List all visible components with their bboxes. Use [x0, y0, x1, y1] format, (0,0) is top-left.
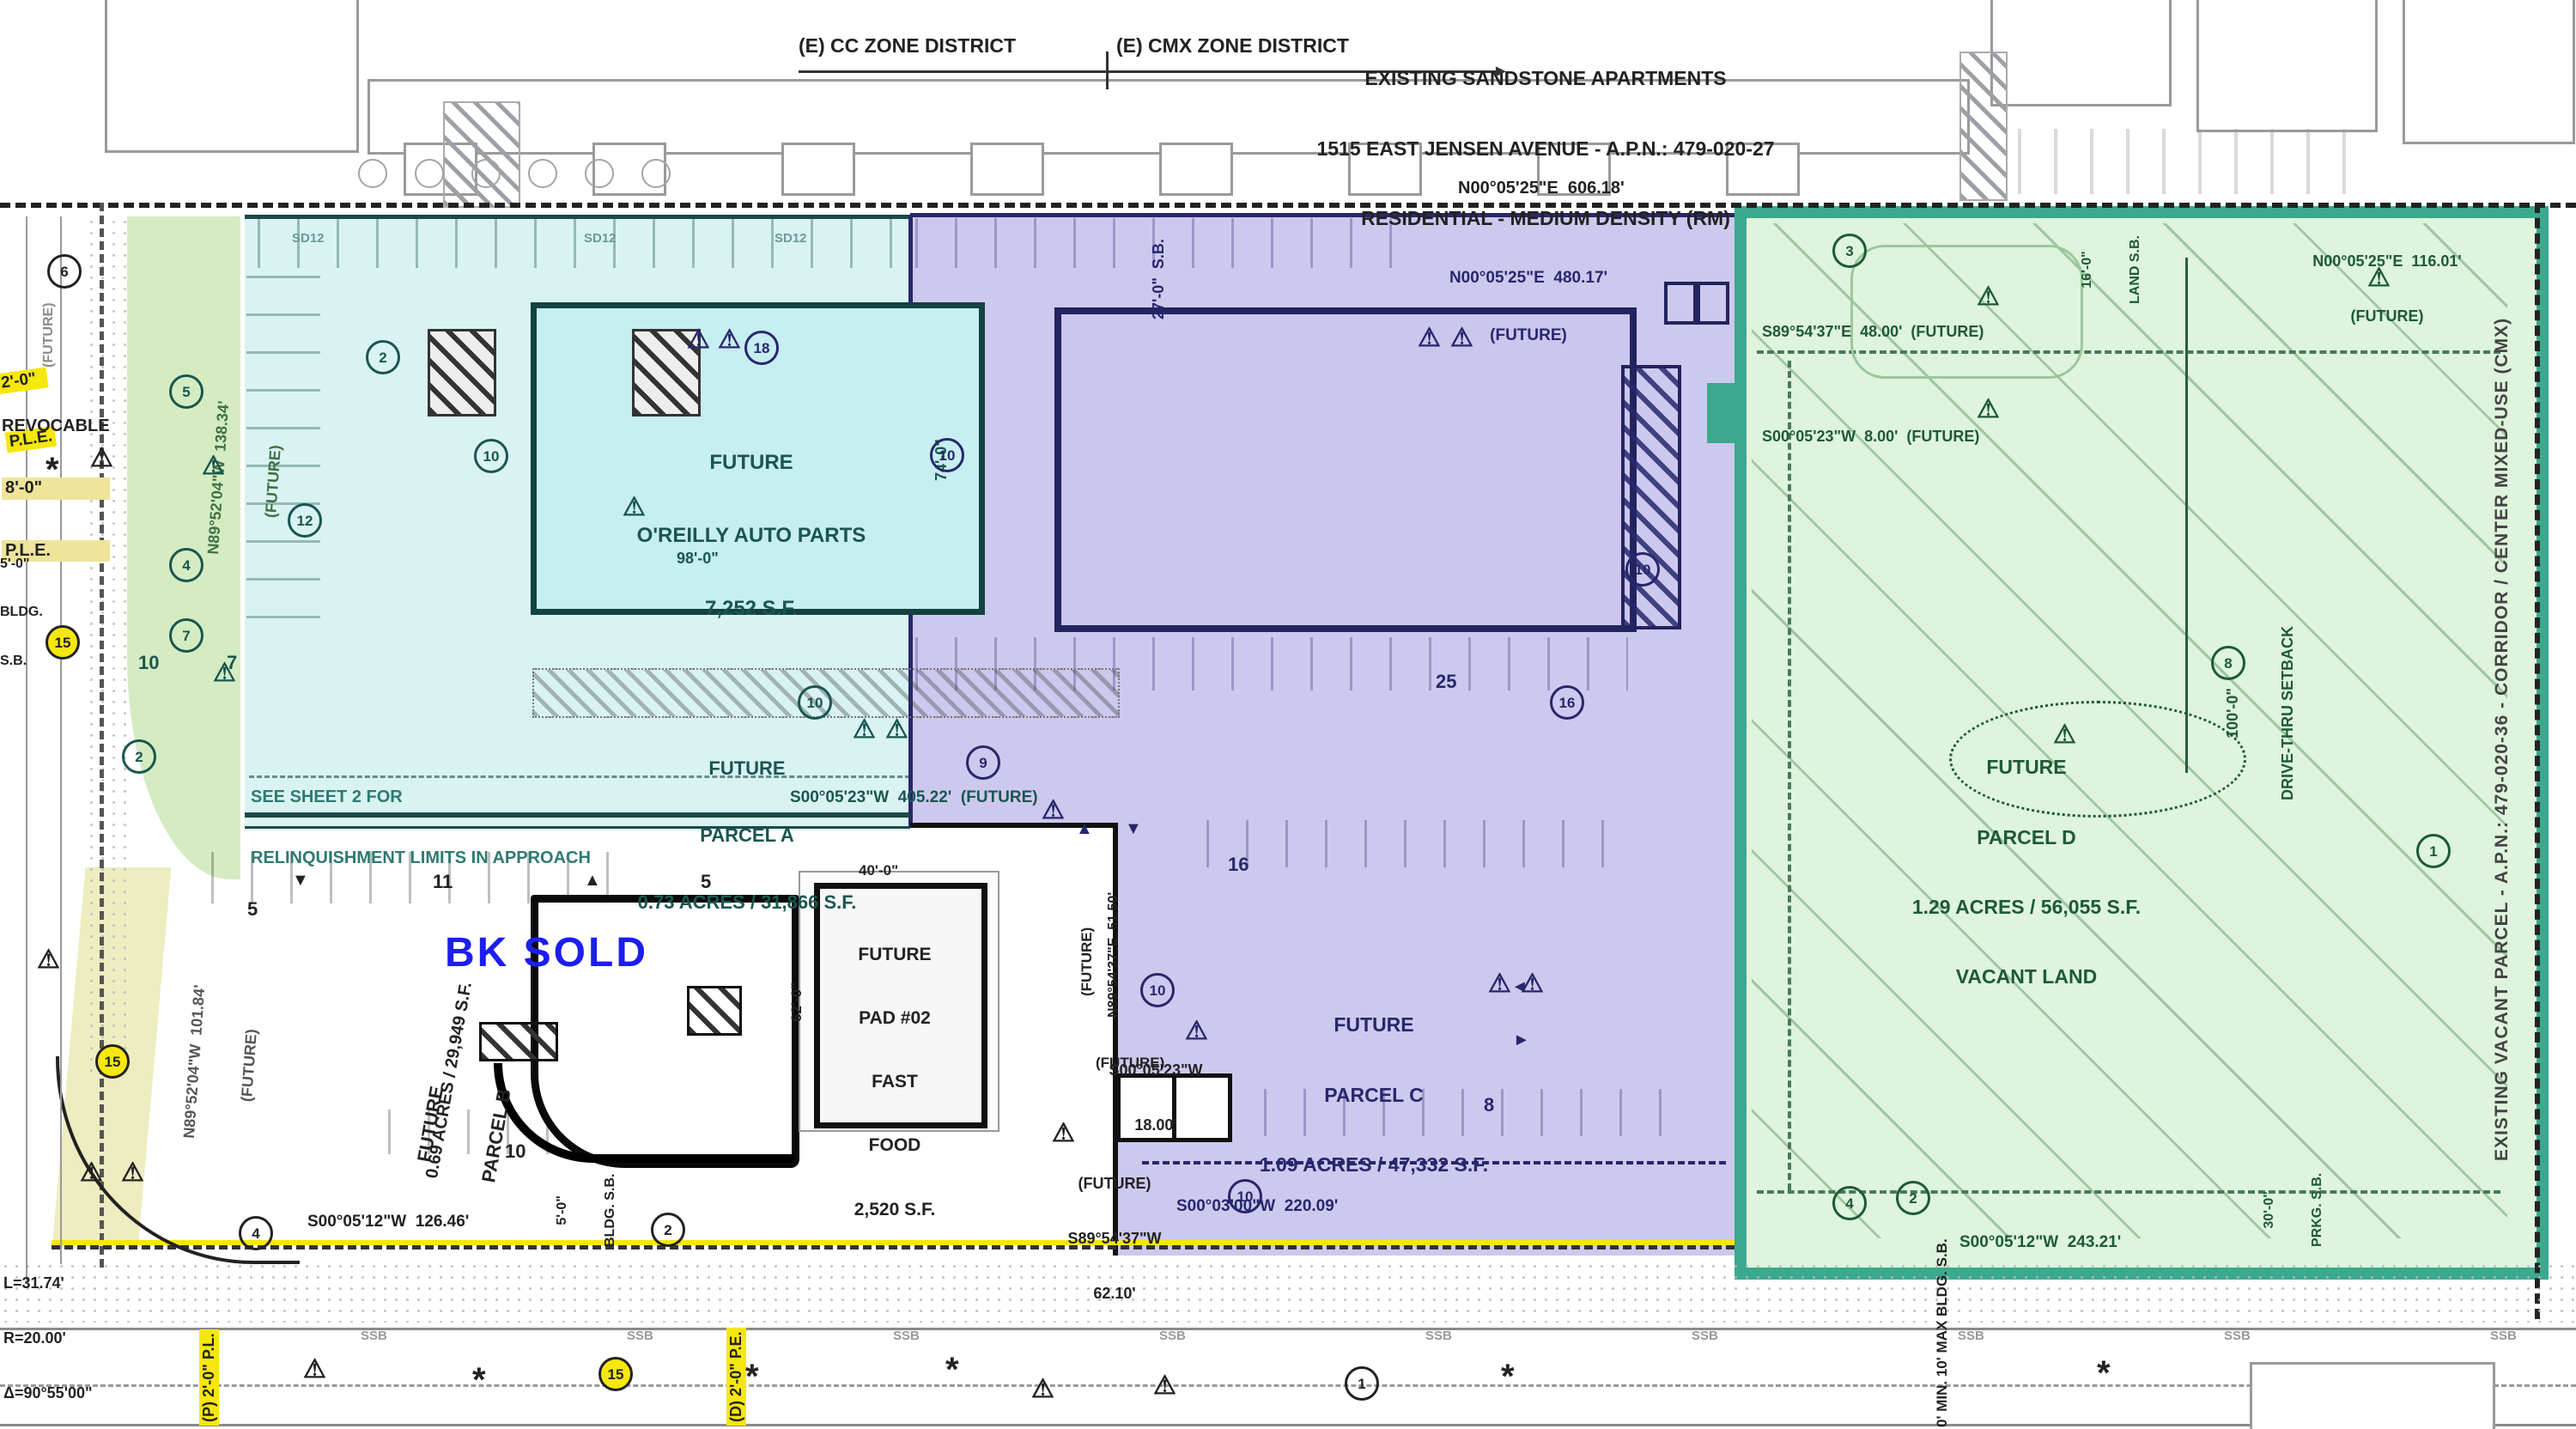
bearing-d-w8: S00°05'23"W 8.00' (FUTURE): [1762, 428, 1979, 446]
land-setback-dim: 16'-0": [2080, 235, 2096, 304]
bk-hatch-1: [479, 1022, 558, 1061]
bearing-w101-2: (FUTURE): [235, 988, 264, 1142]
warning-triangle-icon: ⚠: [885, 717, 908, 743]
prkg-setback-dim: 30'-0": [2262, 1173, 2278, 1247]
warning-triangle-icon: ⚠: [1977, 397, 2000, 423]
line-tag: SSB: [627, 1329, 653, 1342]
bearing-w62-3: 62.10': [1054, 1285, 1175, 1303]
parcel-c-line3: 1.09 ACRES / 47,332 S.F.: [1202, 1153, 1546, 1177]
parking-count: 10: [505, 1142, 526, 1161]
apartments-line3: RESIDENTIAL - MEDIUM DENSITY (RM): [1236, 207, 1855, 230]
future-left-top: (FUTURE): [41, 302, 58, 368]
keynote-circle-12[interactable]: 12: [288, 503, 322, 538]
keynote-circle-10[interactable]: 10: [1140, 973, 1175, 1007]
shops-hatch-column: [1621, 365, 1681, 629]
warning-triangle-icon: ⚠: [1418, 325, 1441, 351]
pl-bottom-tag: (P) 2'-0" P.L.: [199, 1329, 219, 1426]
keynote-circle-18[interactable]: 18: [744, 331, 779, 365]
left-road-line-2: [60, 216, 62, 1264]
tree-icon: [471, 159, 501, 188]
warning-triangle-icon: ⚠: [2367, 265, 2391, 291]
bearing-b-south: S00°05'12"W 126.46': [307, 1213, 469, 1231]
keynote-circle-4[interactable]: 4: [169, 548, 204, 582]
existing-building-topright-3: [2403, 0, 2575, 144]
right-parcel-note: EXISTING VACANT PARCEL - A.P.N.: 479-020…: [2492, 318, 2513, 1161]
oreilly-label: FUTURE O'REILLY AUTO PARTS 7,252 S.F.: [550, 402, 953, 669]
line-tag: SSB: [361, 1329, 387, 1342]
sheet2-line1: SEE SHEET 2 FOR: [251, 787, 591, 808]
warning-triangle-icon: ⚠: [853, 717, 876, 743]
parcel-d-setback-bottom: [1757, 1190, 2500, 1194]
parking-count: 10: [138, 654, 159, 672]
trash-enclosure-1: [1664, 282, 1697, 325]
sidewalk-band-bottom: [0, 1261, 2576, 1323]
bearing-w62-1: (FUTURE): [1054, 1175, 1175, 1193]
parcel-d-line4: VACANT LAND: [1855, 965, 2198, 988]
bearing-a-south: S00°05'23"W 405.22' (FUTURE): [790, 788, 1038, 807]
bearing-d-ne-2: (FUTURE): [2267, 307, 2507, 325]
bearing-s18-2: 18.00': [1104, 1116, 1207, 1134]
warning-triangle-icon: ⚠: [1042, 798, 1065, 824]
curve-l: L=31.74': [3, 1274, 93, 1292]
line-tag: SSB: [893, 1329, 920, 1342]
hydrant-icon: *: [945, 1353, 959, 1387]
parking-count: 8: [1484, 1096, 1494, 1115]
keynote-circle-15[interactable]: 15: [95, 1044, 130, 1079]
keynote-circle-10[interactable]: 10: [798, 685, 832, 720]
crosswalk-hatch-right: [1959, 52, 2008, 201]
setback-bldg5: 5'-0" BLDG. S.B.: [522, 1174, 652, 1247]
line-tag: SSB: [1958, 1329, 1984, 1342]
building-bottom-right: [2250, 1362, 2495, 1429]
oreilly-line2: O'REILLY AUTO PARTS: [550, 524, 953, 548]
apartments-line1: EXISTING SANDSTONE APARTMENTS: [1236, 67, 1855, 90]
curve-data: L=31.74' R=20.00' Δ=90°55'00": [3, 1238, 93, 1429]
pad02-line2: PAD #02: [816, 1008, 974, 1030]
hydrant-icon: *: [745, 1359, 759, 1394]
parcel-b-line2: PARCEL B: [477, 1087, 516, 1184]
keynote-circle-3[interactable]: 3: [1832, 234, 1867, 268]
line-tag: SSB: [1692, 1329, 1718, 1342]
pad02-line1: FUTURE: [816, 945, 974, 966]
bearing-w101: N89°52'04"W 101.84' (FUTURE): [144, 982, 301, 1146]
warning-triangle-icon: ⚠: [1488, 971, 1511, 997]
pad02-dim-40: 40'-0": [859, 862, 898, 879]
drive-thru-text: DRIVE-THRU SETBACK: [2279, 626, 2297, 800]
pe-bottom-tag: (D) 2'-0" P.E.: [726, 1328, 746, 1426]
flow-arrow-icon: ▲: [1076, 820, 1093, 837]
pad02-dim-62: 62'-0": [788, 982, 805, 1022]
warning-triangle-icon: ⚠: [1031, 1377, 1054, 1402]
warning-triangle-icon: ⚠: [2053, 722, 2076, 748]
bottomright-setback: 0' MIN. 10' MAX BLDG. S.B.: [1934, 1238, 1951, 1427]
left-bldg-sb-3: S.B.: [0, 654, 43, 670]
apartment-bump: [781, 143, 855, 196]
hydrant-icon: *: [1501, 1359, 1515, 1394]
line-tag: SD12: [775, 232, 807, 245]
line-tag: SD12: [584, 232, 617, 245]
keynote-circle-1[interactable]: 1: [2416, 834, 2451, 868]
tree-icon: [641, 159, 671, 188]
parcel-d-label: FUTURE PARCEL D 1.29 ACRES / 56,055 S.F.…: [1855, 709, 2198, 1036]
warning-triangle-icon: ⚠: [1185, 1019, 1208, 1044]
site-plan-canvas: (E) CC ZONE DISTRICT (E) CMX ZONE DISTRI…: [0, 0, 2576, 1429]
bearing-e51: N89°54'37"E 51.50': [1106, 892, 1122, 1018]
line-tag: SSB: [2224, 1329, 2251, 1342]
parcel-c-line1: FUTURE: [1202, 1013, 1546, 1037]
apartment-bump: [970, 143, 1044, 196]
bearing-d-south: S00°05'12"W 243.21': [1959, 1233, 2121, 1252]
keynote-circle-5[interactable]: 5: [169, 374, 204, 409]
warning-triangle-icon: ⚠: [1977, 284, 2000, 310]
warning-triangle-icon: ⚠: [1153, 1373, 1176, 1399]
bearing-w62-2: S89°54'37"W: [1054, 1230, 1175, 1248]
keynote-circle-8[interactable]: 8: [2211, 646, 2245, 680]
line-tag: SD12: [292, 232, 325, 245]
existing-building-topleft: [105, 0, 359, 153]
island-hatch-a1: [428, 329, 496, 417]
sheet2-line2: RELINQUISHMENT LIMITS IN APPROACH: [251, 848, 591, 869]
tree-icon: [358, 159, 387, 188]
keynote-circle-2[interactable]: 2: [1896, 1181, 1930, 1215]
keynote-circle-4[interactable]: 4: [1832, 1186, 1867, 1220]
oreilly-line3: 7,252 S.F.: [550, 597, 953, 621]
flow-arrow-icon: ◄: [1511, 978, 1528, 995]
keynote-circle-9[interactable]: 9: [966, 745, 1000, 780]
warning-triangle-icon: ⚠: [213, 660, 236, 686]
warning-triangle-icon: ⚠: [37, 947, 60, 973]
keynote-circle-7[interactable]: 7: [169, 618, 204, 653]
warning-triangle-icon: ⚠: [623, 495, 646, 520]
flow-arrow-icon: ►: [1513, 1031, 1530, 1049]
existing-building-topright-1: [1990, 0, 2172, 106]
warning-triangle-icon: ⚠: [90, 446, 113, 471]
warning-triangle-icon: ⚠: [303, 1357, 326, 1383]
warning-triangle-icon: ⚠: [80, 1160, 103, 1186]
warning-triangle-icon: ⚠: [1052, 1121, 1075, 1146]
tree-icon: [528, 159, 557, 188]
drive-thru-setback: 100'-0" DRIVE-THRU SETBACK: [2188, 626, 2334, 800]
crosswalk-hatch-left: [443, 101, 520, 208]
left-bldg-sb-2: BLDG.: [0, 605, 43, 621]
revocable-line1: REVOCABLE: [2, 417, 110, 437]
keynote-circle-10[interactable]: 10: [930, 438, 964, 472]
oreilly-line1: FUTURE: [550, 451, 953, 475]
oreilly-dim-98: 98'-0": [677, 550, 719, 568]
parking-scribbles-topright: [2018, 129, 2379, 194]
hydrant-icon: *: [2097, 1356, 2111, 1390]
road-edge-2: [0, 1424, 2576, 1426]
bearing-top-future-1: N00°05'25"E 480.17': [1408, 269, 1649, 288]
keynote-circle-2[interactable]: 2: [651, 1213, 685, 1247]
flow-arrow-icon: ▲: [584, 872, 601, 889]
keynote-circle-2[interactable]: 2: [366, 340, 400, 374]
future-plain-label: (FUTURE): [1096, 1055, 1164, 1072]
keynote-circle-4[interactable]: 4: [239, 1216, 273, 1250]
flow-arrow-icon: ▼: [1125, 820, 1142, 837]
bearing-w138-2: (FUTURE): [259, 404, 289, 558]
bk-hatch-2: [687, 986, 742, 1036]
keynote-circle-10[interactable]: 10: [474, 439, 508, 473]
flow-arrow-icon: ▼: [292, 872, 309, 889]
pad02-line3: FAST: [816, 1072, 974, 1093]
bk-sold-label: BK SOLD: [445, 929, 648, 978]
bearing-w101-1: N89°52'04"W 101.84': [180, 984, 210, 1139]
zone-label-cc: (E) CC ZONE DISTRICT: [799, 34, 1016, 58]
keynote-circle-15[interactable]: 15: [598, 1357, 633, 1391]
curve-r: R=20.00': [3, 1329, 93, 1347]
keynote-circle-10[interactable]: 10: [1228, 1179, 1262, 1213]
parcel-d-line2: PARCEL D: [1855, 826, 2198, 849]
parking-count: 5: [701, 873, 711, 891]
bearing-top-future: N00°05'25"E 480.17' (FUTURE): [1408, 230, 1649, 384]
bearing-e51-future: (FUTURE): [1078, 927, 1096, 996]
parcel-d-setback-left: [1788, 361, 1791, 1190]
parcel-d-line3: 1.29 ACRES / 56,055 S.F.: [1855, 896, 2198, 919]
keynote-circle-16[interactable]: 16: [1550, 685, 1584, 720]
apartments-line2: 1515 EAST JENSEN AVENUE - A.P.N.: 479-02…: [1236, 137, 1855, 161]
setback-27-dim: 27'-0": [1150, 277, 1167, 319]
setback-bldg5-dim: 5'-0": [555, 1174, 571, 1247]
apartment-bump: [1159, 143, 1233, 196]
property-line-right: [2535, 203, 2540, 1319]
keynote-circle-15[interactable]: 15: [46, 625, 80, 660]
parking-count: 5: [247, 900, 258, 919]
left-bldg-sb-1: 5'-0": [0, 556, 43, 573]
parking-count: 16: [1228, 855, 1249, 874]
land-setback-text: LAND S.B.: [2128, 235, 2144, 304]
curve-delta: Δ=90°55'00": [3, 1384, 93, 1402]
bearing-s18: S00°05'23"W 18.00': [1104, 1025, 1207, 1171]
land-setback: 16'-0" LAND S.B.: [2047, 235, 2177, 304]
existing-building-topright-2: [2196, 0, 2378, 132]
parking-count: 11: [433, 873, 453, 891]
tree-icon: [415, 159, 444, 188]
warning-triangle-icon: ⚠: [202, 453, 225, 479]
pad02-label: FUTURE PAD #02 FAST FOOD 2,520 S.F.: [816, 902, 974, 1263]
line-tag: SSB: [1425, 1329, 1452, 1342]
flow-arrow-icon: ►: [1492, 63, 1510, 80]
setback-27: 27'-0" S.B.: [1132, 239, 1187, 337]
line-tag: SSB: [1159, 1329, 1186, 1342]
bearing-top: N00°05'25"E 606.18': [1458, 179, 1625, 199]
prkg-setback: 30'-0" PRKG. S.B.: [2229, 1173, 2359, 1247]
parking-row-a-top: [258, 218, 907, 268]
keynote-circle-2[interactable]: 2: [122, 739, 156, 774]
hydrant-icon: *: [472, 1363, 486, 1397]
bearing-d-e48: S89°54'37"E 48.00' (FUTURE): [1762, 323, 1984, 341]
prkg-setback-text: PRKG. S.B.: [2310, 1173, 2326, 1247]
parcel-a-line2: PARCEL A: [601, 824, 893, 847]
left-bldg-sb: 5'-0" BLDG. S.B.: [0, 524, 43, 702]
keynote-circle-1[interactable]: 1: [1345, 1366, 1379, 1401]
line-tag: SSB: [2490, 1329, 2517, 1342]
pad02-line4: FOOD: [816, 1135, 974, 1157]
trash-enclosure-2: [1697, 282, 1729, 325]
setback-bldg5-text: BLDG. S.B.: [603, 1174, 619, 1247]
parking-row-c-16: [1206, 820, 1619, 867]
parcel-d-line1: FUTURE: [1855, 756, 2198, 779]
parking-count: 25: [1436, 672, 1456, 691]
pad02-line5: 2,520 S.F.: [816, 1200, 974, 1221]
left-sidewalk-speckle: [86, 216, 131, 1075]
warning-triangle-icon: ⚠: [687, 327, 710, 353]
zone-tick: [1106, 52, 1109, 89]
hydrant-icon: *: [46, 453, 59, 487]
warning-triangle-icon: ⚠: [718, 327, 741, 353]
parcel-d-notch: [1707, 383, 1741, 443]
warning-triangle-icon: ⚠: [1450, 325, 1473, 351]
bearing-top-future-2: (FUTURE): [1408, 326, 1649, 345]
tree-icon: [585, 159, 614, 188]
warning-triangle-icon: ⚠: [121, 1160, 144, 1186]
road-center-dash: [0, 1384, 2576, 1387]
parcel-a-line1: FUTURE: [601, 757, 893, 780]
keynote-circle-10[interactable]: 10: [1625, 552, 1660, 587]
setback-27-sb: S.B.: [1150, 239, 1167, 269]
keynote-circle-6[interactable]: 6: [47, 254, 82, 289]
